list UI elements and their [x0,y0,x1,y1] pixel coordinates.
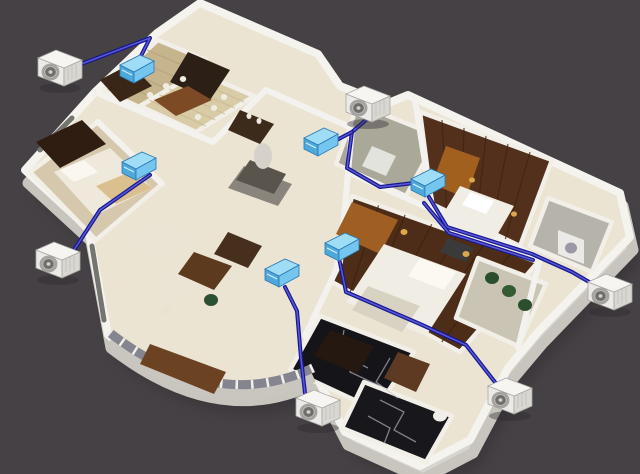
garden-plant [518,299,532,311]
dining-chair [211,105,217,111]
fan-hub [47,262,51,266]
dining-chair [180,76,186,82]
ac-floorplan-render [0,0,640,474]
master-lamp [463,251,470,257]
scene-svg [0,0,640,474]
washing-machine-door [565,243,577,254]
toilet [433,411,447,422]
dining-chair [195,114,201,120]
outdoor-unit-top [346,86,390,129]
fan-hub [357,106,361,110]
dining-chair [163,83,169,89]
right-bedroom-lamp [511,211,517,216]
fan-hub [599,294,603,298]
outdoor-unit-top-left [38,50,82,93]
foyer-sculpture [254,143,272,169]
dining-chair [221,94,227,100]
console-vase [247,113,252,119]
right-bedroom-lamp [469,177,475,182]
master-lamp [401,229,408,235]
fan-hub [307,410,311,414]
console-vase [257,118,262,124]
dining-chair [147,92,153,98]
outdoor-unit-right [588,274,632,317]
garden-plant [485,272,499,284]
garden-plant [502,285,516,297]
fan-hub [499,398,503,402]
floor-lamp [161,306,171,314]
living-plant [204,294,218,306]
fan-hub [49,70,53,74]
